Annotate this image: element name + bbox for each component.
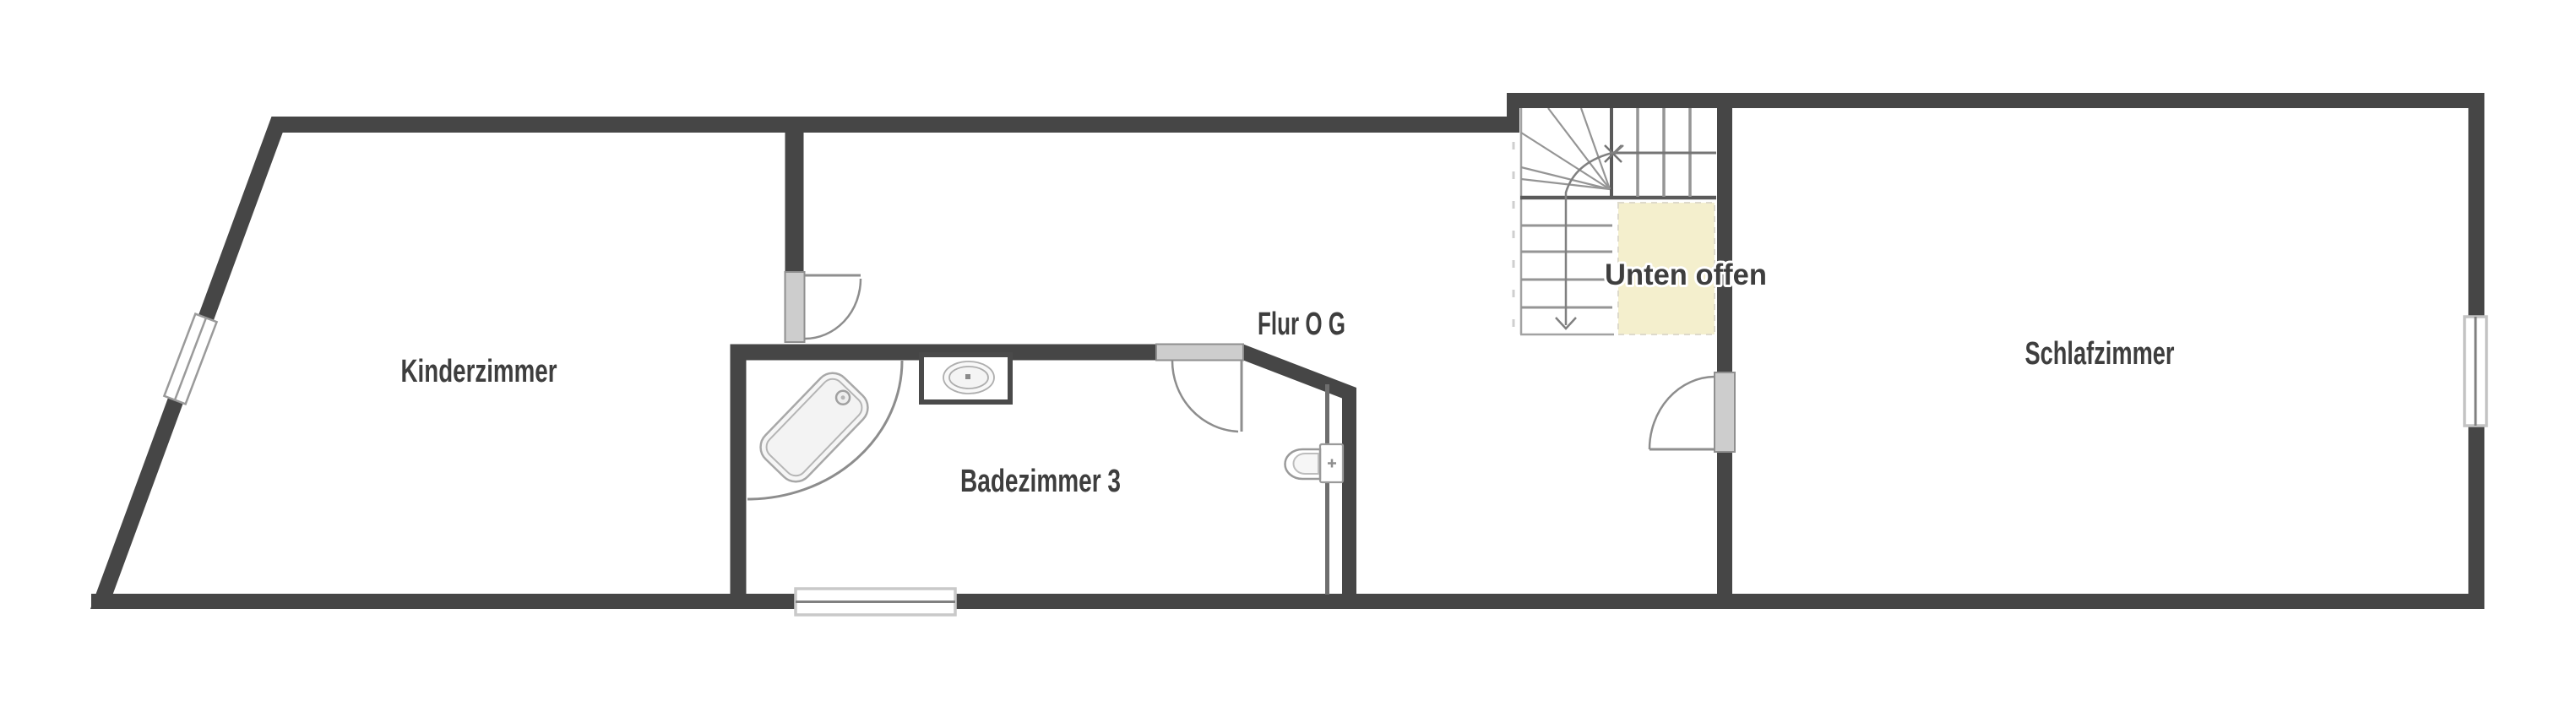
svg-text:Schlafzimmer: Schlafzimmer (2025, 336, 2175, 372)
svg-text:Kinderzimmer: Kinderzimmer (401, 354, 557, 389)
svg-text:Flur O G: Flur O G (1258, 307, 1345, 342)
svg-text:Badezimmer 3: Badezimmer 3 (960, 464, 1121, 499)
svg-text:Unten offen: Unten offen (1605, 258, 1767, 291)
